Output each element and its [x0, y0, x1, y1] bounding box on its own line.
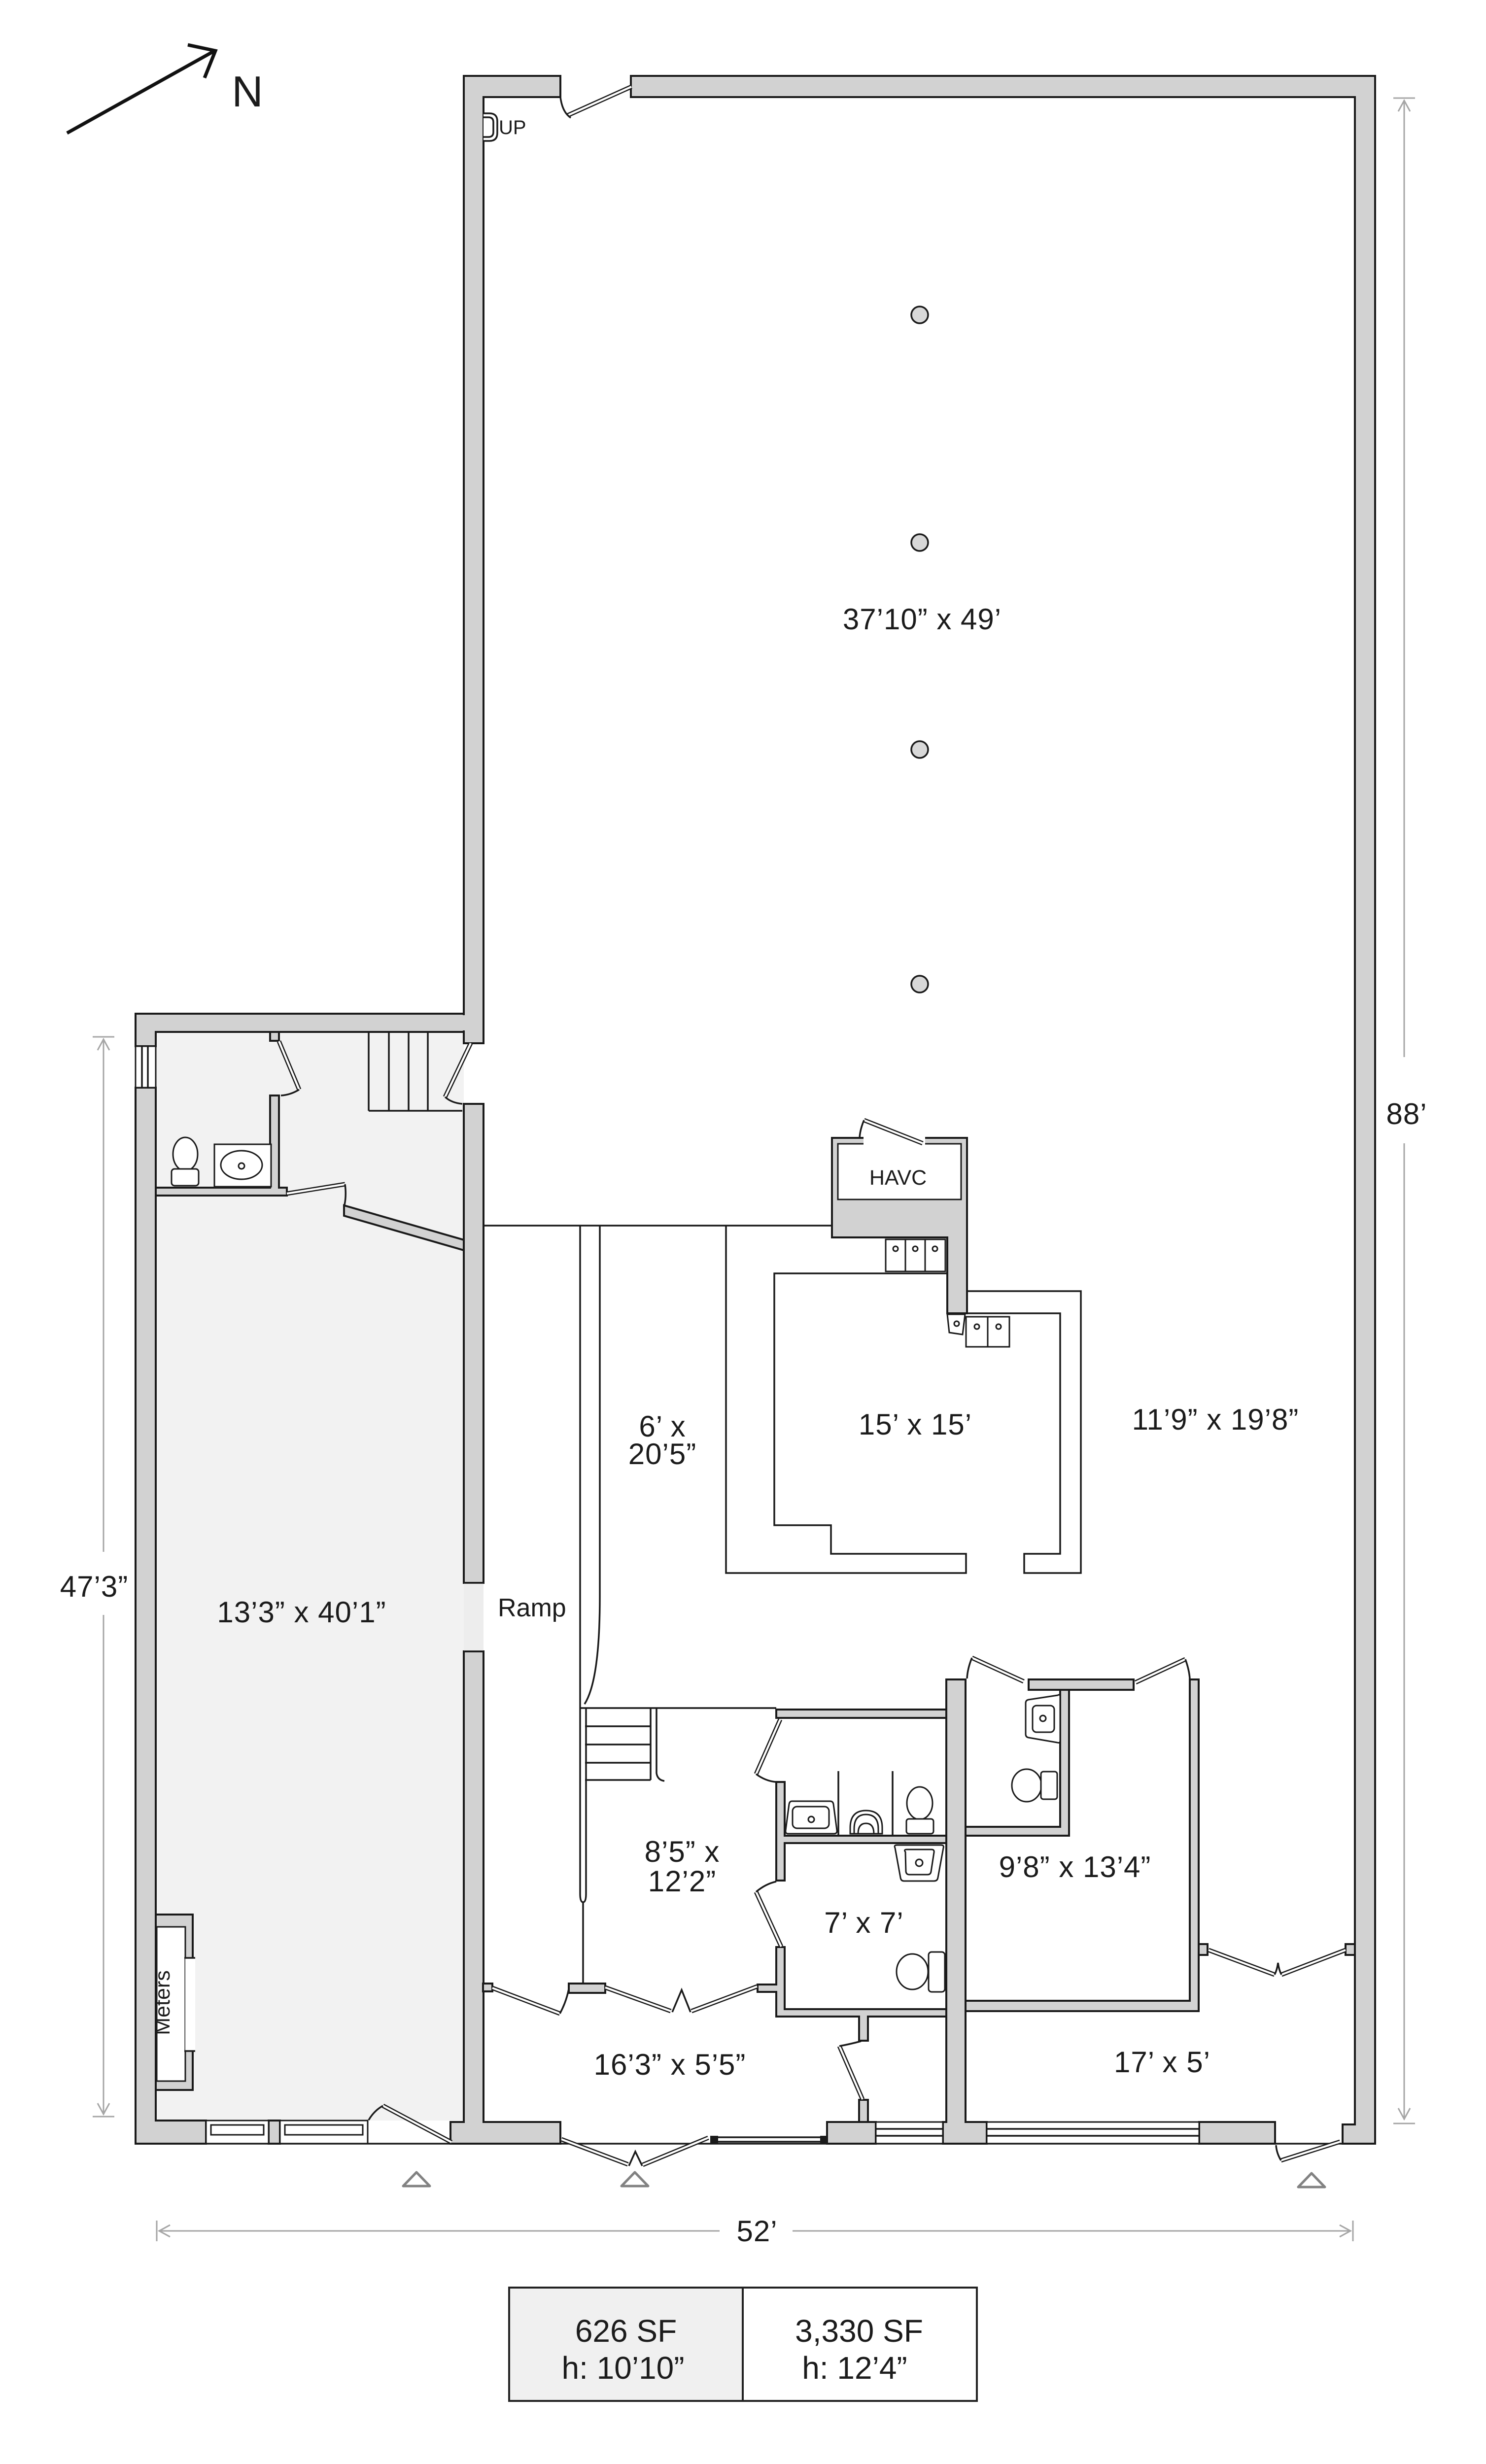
svg-text:17’ x 5’: 17’ x 5’ — [1114, 2046, 1210, 2079]
svg-text:12’2”: 12’2” — [648, 1865, 716, 1898]
svg-text:13’3” x 40’1”: 13’3” x 40’1” — [217, 1596, 386, 1629]
svg-text:h: 10’10”: h: 10’10” — [561, 2350, 684, 2386]
svg-text:11’9” x 19’8”: 11’9” x 19’8” — [1132, 1403, 1299, 1436]
svg-text:N: N — [232, 67, 263, 116]
svg-text:h: 12’4”: h: 12’4” — [802, 2350, 907, 2386]
svg-text:52’: 52’ — [736, 2215, 777, 2248]
svg-text:3,330 SF: 3,330 SF — [795, 2313, 923, 2349]
svg-text:47’3”: 47’3” — [60, 1570, 128, 1603]
svg-text:9’8” x 13’4”: 9’8” x 13’4” — [999, 1850, 1151, 1883]
svg-text:7’ x 7’: 7’ x 7’ — [824, 1906, 904, 1939]
svg-text:Meters: Meters — [151, 1970, 174, 2035]
svg-text:37’10” x 49’: 37’10” x 49’ — [843, 603, 1002, 636]
svg-text:626 SF: 626 SF — [575, 2313, 677, 2349]
svg-text:8’5” x: 8’5” x — [645, 1835, 720, 1868]
svg-text:Ramp: Ramp — [498, 1594, 566, 1622]
svg-text:20’5”: 20’5” — [628, 1437, 696, 1471]
svg-text:HAVC: HAVC — [869, 1166, 927, 1190]
svg-text:16’3” x 5’5”: 16’3” x 5’5” — [594, 2048, 746, 2081]
svg-text:15’ x 15’: 15’ x 15’ — [859, 1408, 972, 1441]
svg-text:UP: UP — [499, 117, 526, 138]
svg-text:88’: 88’ — [1386, 1097, 1427, 1130]
